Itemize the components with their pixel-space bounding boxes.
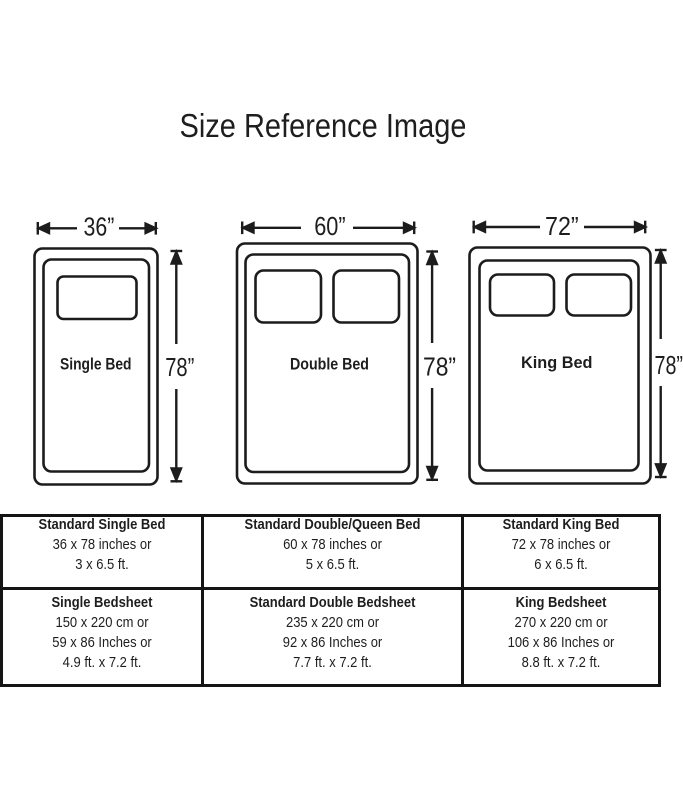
svg-text:King Bed: King Bed bbox=[521, 353, 593, 372]
svg-text:72”: 72” bbox=[545, 211, 579, 241]
svg-text:Double Bed: Double Bed bbox=[290, 355, 369, 374]
svg-text:78”: 78” bbox=[165, 352, 194, 382]
svg-text:60”: 60” bbox=[314, 211, 345, 241]
svg-text:Single Bed: Single Bed bbox=[60, 355, 132, 374]
svg-text:78”: 78” bbox=[423, 352, 456, 382]
svg-text:36”: 36” bbox=[84, 212, 115, 242]
svg-text:78”: 78” bbox=[655, 350, 683, 380]
